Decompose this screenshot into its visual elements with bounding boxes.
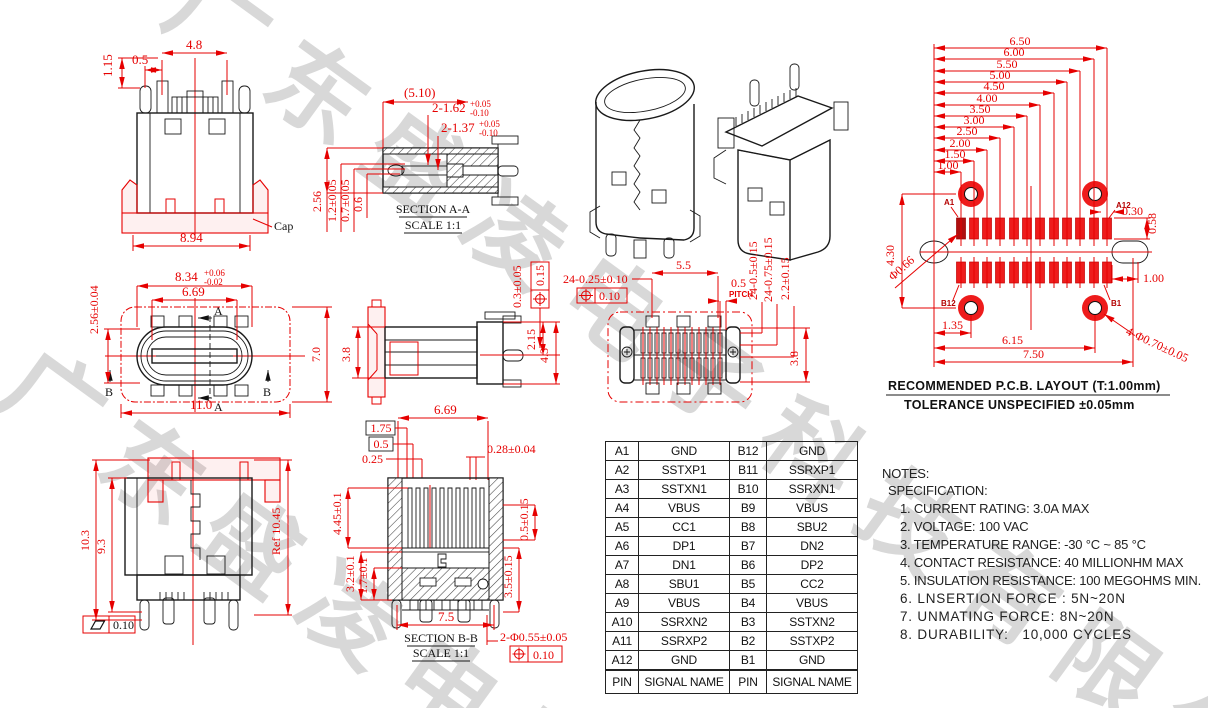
pin-cell: B9: [730, 499, 767, 518]
spec-item: 8. DURABILITY: 10,000 CYCLES: [900, 626, 1201, 644]
dim-front-669: 6.69: [182, 284, 205, 299]
signal-cell: DN1: [639, 556, 730, 575]
dim-aa-162: 2-1.62: [432, 100, 466, 115]
pin-cell: B3: [730, 613, 767, 632]
view-isometric-front: [590, 62, 700, 258]
signal-cell: DP1: [639, 537, 730, 556]
spec-item: 1. CURRENT RATING: 3.0A MAX: [900, 500, 1201, 518]
dim-pcb-030: 0.30: [1122, 204, 1143, 218]
dim-aa-06: 0.6: [351, 197, 365, 212]
pcb-pads-bottom: [957, 262, 1112, 283]
tolerance-value-side: 0.15: [533, 265, 547, 286]
dim-pins-24075: 24-0.75±0.15: [761, 237, 775, 302]
signal-cell: VBUS: [767, 594, 858, 613]
table-row: A7DN1B6DP2: [606, 556, 858, 575]
section-aa-label: SECTION A-A: [396, 202, 471, 216]
signal-cell: DN2: [767, 537, 858, 556]
signal-cell: CC2: [767, 575, 858, 594]
pin-cell: A3: [606, 480, 639, 499]
dim-pins-38: 3.8: [787, 351, 801, 366]
header-pin: PIN: [730, 670, 767, 694]
table-row: A3SSTXN1B10SSRXN1: [606, 480, 858, 499]
flatness-value: 0.10: [113, 618, 134, 632]
section-bb-scale: SCALE 1:1: [413, 646, 469, 660]
pin-cell: A8: [606, 575, 639, 594]
dim-bb-669: 6.69: [434, 402, 457, 417]
signal-cell: VBUS: [639, 499, 730, 518]
signal-cell: GND: [767, 442, 858, 461]
position-tolerance-frame-side: 0.15: [531, 262, 549, 308]
pin-cell: A5: [606, 518, 639, 537]
spec-item: 4. CONTACT RESISTANCE: 40 MILLIONHM MAX: [900, 554, 1201, 572]
dim-aa-510: (5.10): [404, 85, 435, 100]
datasheet-canvas: 广东盛凌电子科技有限公司 广东盛凌电子科技有限公司: [0, 0, 1208, 708]
dim-bb-3515: 3.5±0.15: [501, 555, 515, 598]
view-pcb-layout: 6.50 6.00 5.50 5.00 4.50 4.00 3.50 3.00 …: [883, 34, 1191, 412]
dim-side-43: 4.3: [537, 348, 551, 363]
pins-row: [641, 327, 722, 385]
dim-bb-32: 3.2±0.1: [343, 555, 357, 592]
position-tolerance-frame-bb: 0.10: [510, 646, 562, 662]
dim-pcb-058: 0.58: [1145, 213, 1159, 234]
view-isometric-back: [714, 64, 848, 260]
flatness-icon: [91, 621, 105, 629]
signal-cell: DP2: [767, 556, 858, 575]
signal-cell: VBUS: [767, 499, 858, 518]
pcb-label-b12: B12: [941, 299, 956, 308]
dim-aa-12: 1.2±0.05: [325, 179, 339, 222]
dim-pcb-615: 6.15: [1002, 333, 1023, 347]
signal-cell: SSTXN1: [639, 480, 730, 499]
pin-cell: A12: [606, 651, 639, 671]
signal-cell: GND: [767, 651, 858, 671]
spec-item: 3. TEMPERATURE RANGE: -30 °C ~ 85 °C: [900, 536, 1201, 554]
dim-front-834-sub: -0.02: [204, 277, 223, 287]
pin-cell: B4: [730, 594, 767, 613]
dim-aa-162-sub: -0.10: [470, 108, 489, 118]
tolerance-value-bb: 0.10: [533, 648, 554, 662]
view-rear-elevation: 4.8 0.5 1.15 8.94 Cap: [100, 37, 293, 251]
position-tolerance-frame-pins: 0.10: [577, 288, 627, 303]
pin-cell: A4: [606, 499, 639, 518]
pin-cell: B10: [730, 480, 767, 499]
dim-pins-55: 5.5: [676, 258, 691, 272]
table-row: A8SBU1B5CC2: [606, 575, 858, 594]
view-section-bb: 6.69 1.75 0.5 0.25 0.28±0.04: [330, 402, 567, 662]
signal-cell: SBU1: [639, 575, 730, 594]
dim-aa-137: 2-1.37: [441, 120, 475, 135]
table-row: A5CC1B8SBU2: [606, 518, 858, 537]
dim-pins-24025: 24-0.25±0.10: [563, 272, 628, 286]
dim-bottom-103: 10.3: [78, 530, 92, 551]
pin-cell: B5: [730, 575, 767, 594]
pin-cell: B8: [730, 518, 767, 537]
signal-cell: SSRXN1: [767, 480, 858, 499]
cap-label: Cap: [274, 219, 293, 233]
pin-cell: A6: [606, 537, 639, 556]
notes-subtitle: SPECIFICATION:: [888, 483, 1201, 498]
dim-bb-0515: 0.5±0.15: [517, 498, 531, 541]
pcb-tolerance-note: TOLERANCE UNSPECIFIED ±0.05mm: [904, 398, 1135, 412]
dim-rear-48: 4.8: [186, 37, 202, 52]
pin-cell: B6: [730, 556, 767, 575]
dim-side-38: 3.8: [339, 347, 353, 362]
view-side: 3.8 0.3±0.05 0.15 2.15 4.3: [339, 262, 560, 404]
section-marker-b-right: B: [263, 385, 271, 399]
tolerance-value-pins: 0.10: [599, 289, 620, 303]
dim-bb-75: 7.5: [438, 609, 454, 624]
dim-front-834: 8.34: [175, 269, 198, 284]
notes-block: NOTES: SPECIFICATION: 1. CURRENT RATING:…: [882, 466, 1201, 644]
dim-rear-894: 8.94: [180, 230, 203, 245]
dim-bottom-93: 9.3: [94, 539, 108, 554]
signal-cell: SBU2: [767, 518, 858, 537]
signal-cell: SSTXP2: [767, 632, 858, 651]
dim-pins-2405: 24-0.5±0.15: [746, 241, 760, 300]
table-row: A10SSRXN2B3SSTXN2: [606, 613, 858, 632]
signal-cell: VBUS: [639, 594, 730, 613]
pin-cell: B12: [730, 442, 767, 461]
dim-bb-025: 0.25: [362, 452, 383, 466]
dim-aa-07: 0.7±0.05: [338, 179, 352, 222]
spec-item: 2. VOLTAGE: 100 VAC: [900, 518, 1201, 536]
flatness-frame: 0.10: [83, 616, 135, 633]
section-bb-label: SECTION B-B: [404, 631, 478, 645]
table-row: A2SSTXP1B11SSRXP1: [606, 461, 858, 480]
spec-item: 5. INSULATION RESISTANCE: 100 MEGOHMS MI…: [900, 572, 1201, 590]
dim-pcb-4holes: 4-Φ0.70±0.05: [1124, 324, 1191, 365]
section-marker-b-left: B: [105, 385, 113, 399]
position-tolerance-icon: [579, 289, 593, 302]
pin-assignment-table: A1GNDB12GND A2SSTXP1B11SSRXP1 A3SSTXN1B1…: [605, 441, 858, 694]
dim-pcb-430: 4.30: [883, 245, 897, 266]
pcb-pads-top: [957, 218, 1112, 239]
section-marker-a-top: A: [214, 304, 223, 318]
header-signal: SIGNAL NAME: [639, 670, 730, 694]
table-row: A4VBUSB9VBUS: [606, 499, 858, 518]
dim-front-110: 11.0: [190, 397, 212, 412]
table-row: A11SSRXP2B2SSTXP2: [606, 632, 858, 651]
dim-pcb-135: 1.35: [942, 318, 963, 332]
view-section-aa: (5.10) 2-1.62 +0.05 -0.10 2-1.37 +0.05 -…: [310, 85, 518, 233]
spec-item: 7. UNMATING FORCE: 8N~20N: [900, 608, 1201, 626]
pin-cell: B7: [730, 537, 767, 556]
signal-cell: GND: [639, 651, 730, 671]
signal-cell: SSTXN2: [767, 613, 858, 632]
signal-cell: SSRXP2: [639, 632, 730, 651]
dim-pcb-750: 7.50: [1023, 347, 1044, 361]
signal-cell: CC1: [639, 518, 730, 537]
header-signal: SIGNAL NAME: [767, 670, 858, 694]
signal-cell: SSRXP1: [767, 461, 858, 480]
dim-front-70: 7.0: [309, 347, 323, 362]
pcb-hole-rings: [958, 181, 1108, 321]
pcb-title: RECOMMENDED P.C.B. LAYOUT (T:1.00mm): [888, 379, 1161, 393]
table-header-row: PINSIGNAL NAMEPINSIGNAL NAME: [606, 670, 858, 694]
dim-pins-22: 2.2±0.15: [778, 257, 792, 300]
signal-cell: GND: [639, 442, 730, 461]
view-front: A A B B 8.34 +0.06 -0.02 6.69 2.56±0.04: [87, 268, 332, 418]
table-row: A9VBUSB4VBUS: [606, 594, 858, 613]
dim-aa-256: 2.56: [310, 191, 324, 212]
dim-front-256: 2.56±0.04: [87, 285, 101, 334]
dim-bb-holes: 2-Φ0.55±0.05: [500, 630, 567, 644]
pin-cell: B11: [730, 461, 767, 480]
header-pin: PIN: [606, 670, 639, 694]
dim-pins-05: 0.5: [731, 276, 746, 290]
dim-pcb-100b: 1.00: [1143, 271, 1164, 285]
dim-aa-137-sub: -0.10: [479, 128, 498, 138]
dim-side-215: 2.15: [524, 329, 538, 350]
spec-item: 6. LNSERTION FORCE : 5N~20N: [900, 590, 1201, 608]
dim-side-03: 0.3±0.05: [510, 265, 524, 308]
section-aa-scale: SCALE 1:1: [405, 218, 461, 232]
dim-pcb-100: 1.00: [938, 158, 959, 172]
pin-cell: A2: [606, 461, 639, 480]
pcb-label-a1: A1: [944, 198, 955, 207]
signal-cell: SSTXP1: [639, 461, 730, 480]
dim-rear-115: 1.15: [100, 54, 115, 77]
view-pins-top: 24-0.25±0.10 0.10 5.5 0.5 PITCH 24-0.5±0…: [563, 237, 810, 402]
position-tolerance-icon: [533, 292, 547, 306]
table-row: A12GNDB1GND: [606, 651, 858, 671]
pin-cell: A11: [606, 632, 639, 651]
pcb-label-b1: B1: [1111, 299, 1122, 308]
pin-cell: A7: [606, 556, 639, 575]
dim-bb-05: 0.5: [374, 437, 389, 451]
dim-bottom-ref: Ref 10.45: [269, 508, 283, 555]
pin-cell: B1: [730, 651, 767, 671]
section-marker-a-bottom: A: [214, 400, 223, 414]
pin-cell: A1: [606, 442, 639, 461]
dim-rear-05: 0.5: [132, 52, 148, 67]
pin-cell: A9: [606, 594, 639, 613]
bb-contact-comb: [408, 485, 484, 548]
position-tolerance-icon: [513, 648, 526, 661]
dim-bb-028: 0.28±0.04: [487, 442, 536, 456]
dim-bb-175: 1.75: [371, 421, 392, 435]
view-bottom-elevation: 10.3 9.3 Ref 10.45 0.10: [78, 450, 292, 645]
table-row: A6DP1B7DN2: [606, 537, 858, 556]
table-row: A1GNDB12GND: [606, 442, 858, 461]
dim-bb-445: 4.45±0.1: [330, 492, 344, 535]
pin-cell: A10: [606, 613, 639, 632]
notes-title: NOTES:: [882, 466, 1201, 481]
dim-bb-17: 1.7±0.1: [356, 557, 370, 594]
signal-cell: SSRXN2: [639, 613, 730, 632]
pin-cell: B2: [730, 632, 767, 651]
